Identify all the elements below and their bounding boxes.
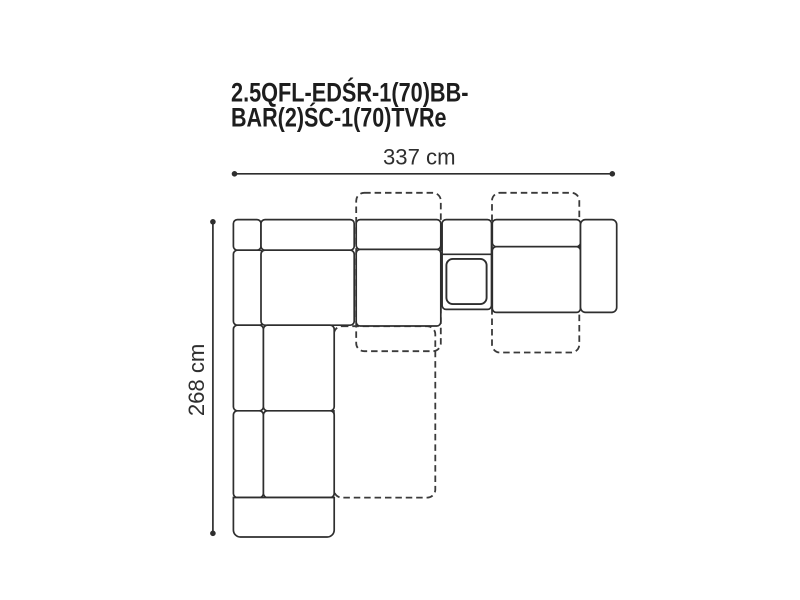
svg-text:BAR(2)ŚC-1(70)TVRe: BAR(2)ŚC-1(70)TVRe <box>231 101 447 132</box>
svg-text:337 cm: 337 cm <box>383 145 456 170</box>
svg-text:268 cm: 268 cm <box>184 344 209 417</box>
